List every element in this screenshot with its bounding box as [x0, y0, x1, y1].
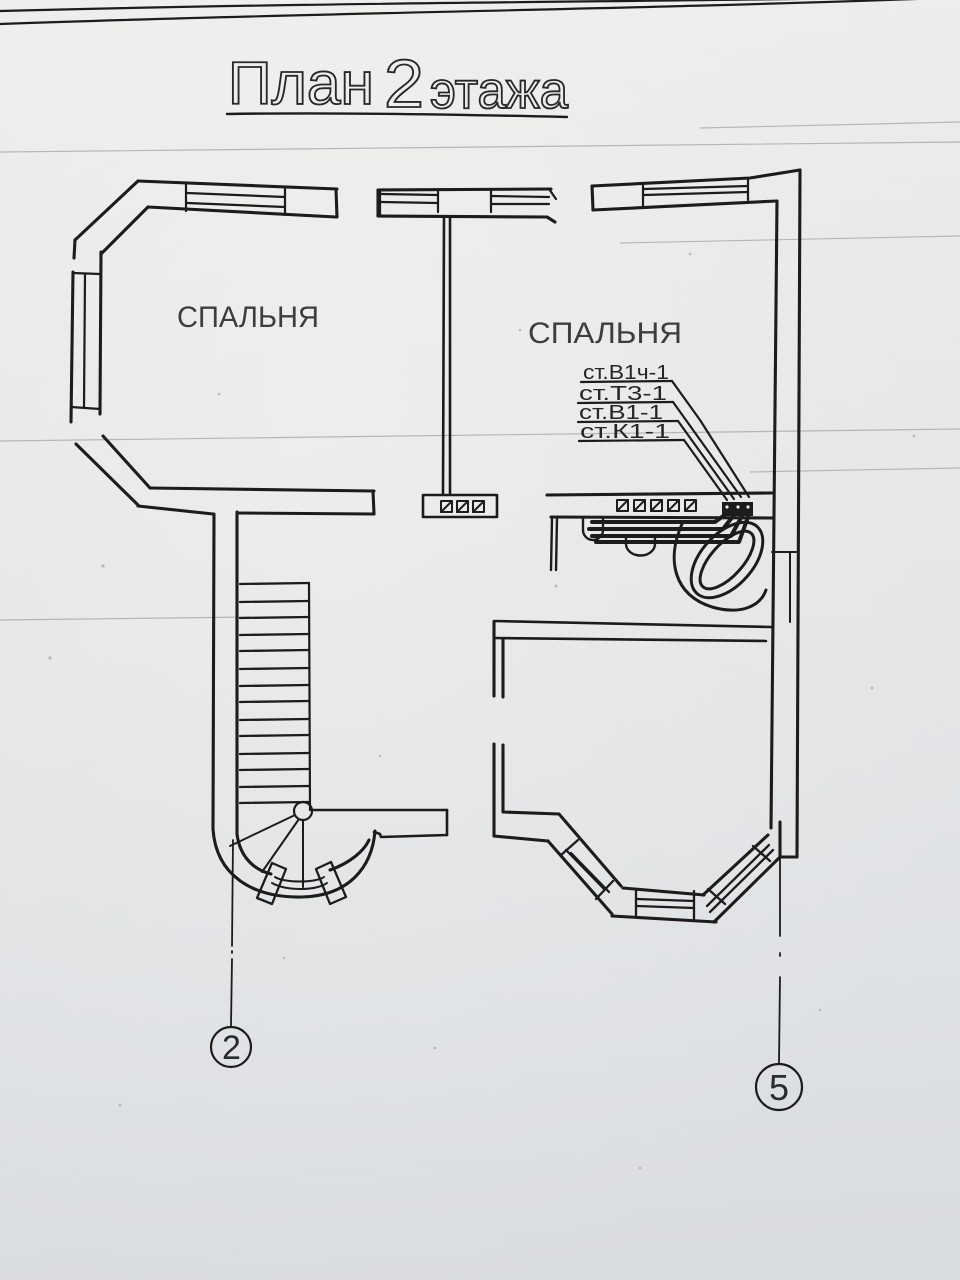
svg-text:План: План	[228, 50, 374, 117]
svg-text:СПАЛЬНЯ: СПАЛЬНЯ	[177, 301, 319, 334]
svg-text:этажа: этажа	[430, 62, 568, 120]
svg-text:СПАЛЬНЯ: СПАЛЬНЯ	[528, 317, 682, 350]
svg-text:2: 2	[222, 1029, 241, 1067]
svg-text:5: 5	[769, 1067, 789, 1108]
svg-text:2: 2	[384, 46, 424, 122]
